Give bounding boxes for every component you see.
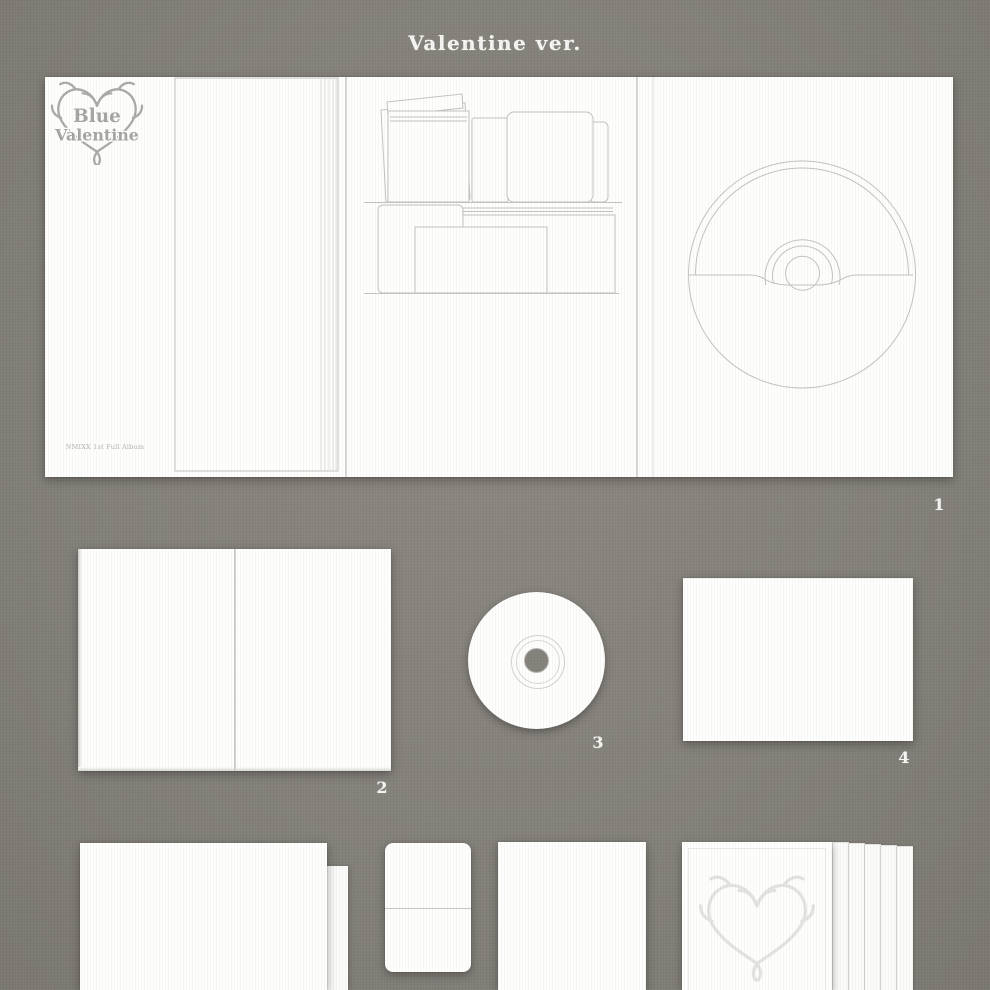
item-number-2: 2 bbox=[370, 778, 394, 797]
poster-sheet-front bbox=[80, 843, 327, 990]
stack-sheet-4 bbox=[880, 845, 897, 990]
stack-sheet-3 bbox=[864, 844, 881, 990]
album-packaging-sheet: Valentine ver. bbox=[0, 0, 990, 990]
heart-flourish-icon bbox=[693, 860, 821, 990]
folded-card bbox=[683, 578, 913, 741]
item-number-3: 3 bbox=[586, 733, 610, 752]
stack-sheet-5 bbox=[896, 846, 913, 990]
logo-text-line2: Valentine bbox=[54, 125, 139, 144]
item-number-1: 1 bbox=[927, 495, 951, 514]
photocard-pair bbox=[385, 843, 471, 972]
blue-valentine-logo: Blue Valentine bbox=[45, 77, 149, 165]
photobook-page-edge-left bbox=[78, 549, 82, 771]
version-title: Valentine ver. bbox=[0, 31, 990, 55]
logo-text-line1: Blue bbox=[73, 106, 121, 127]
package-line-art bbox=[45, 77, 953, 477]
heart-card-front bbox=[682, 842, 832, 990]
heart-card-stack bbox=[682, 842, 912, 990]
cd-pocket bbox=[689, 161, 916, 388]
contents-illustration bbox=[364, 94, 622, 294]
stack-sheet-2 bbox=[848, 843, 865, 990]
booklet-cover bbox=[175, 78, 338, 471]
paper-item bbox=[498, 842, 646, 990]
item-number-4: 4 bbox=[892, 748, 916, 767]
album-caption: NMIXX 1st Full Album bbox=[49, 443, 161, 451]
stack-sheet-1 bbox=[832, 842, 849, 990]
cd-center-hole bbox=[524, 648, 549, 673]
photocard-divider bbox=[385, 908, 471, 909]
album-package-spread: Blue Valentine NMIXX 1st Full Album bbox=[45, 77, 953, 477]
cd-disc bbox=[468, 592, 605, 729]
photobook-fold-line bbox=[234, 549, 236, 771]
photobook-open bbox=[78, 549, 391, 771]
